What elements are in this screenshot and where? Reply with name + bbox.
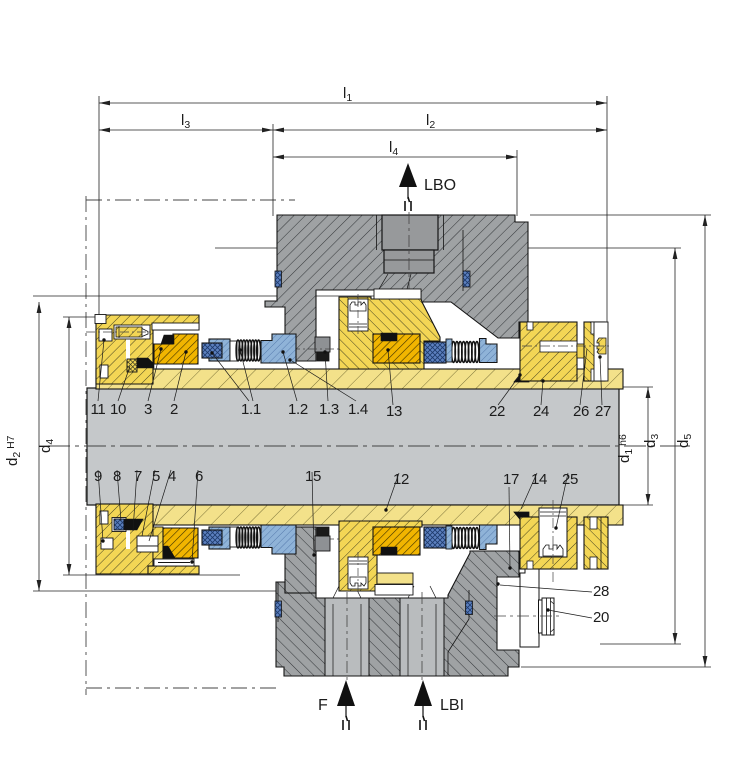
svg-text:8: 8 xyxy=(113,468,121,485)
svg-text:1.1: 1.1 xyxy=(241,401,261,418)
svg-text:15: 15 xyxy=(305,468,321,485)
svg-text:22: 22 xyxy=(489,403,505,420)
svg-text:9: 9 xyxy=(94,468,102,485)
svg-text:24: 24 xyxy=(533,403,549,420)
svg-text:1.4: 1.4 xyxy=(348,401,368,418)
svg-text:4: 4 xyxy=(168,468,176,485)
svg-text:LBO: LBO xyxy=(424,177,456,194)
svg-text:7: 7 xyxy=(134,468,142,485)
svg-text:3: 3 xyxy=(144,401,152,418)
svg-text:12: 12 xyxy=(393,471,409,488)
svg-text:27: 27 xyxy=(595,403,611,420)
svg-text:25: 25 xyxy=(562,471,578,488)
svg-text:28: 28 xyxy=(593,583,609,600)
svg-text:20: 20 xyxy=(593,609,609,626)
svg-text:11: 11 xyxy=(91,401,106,418)
svg-text:LBI: LBI xyxy=(440,697,464,714)
svg-text:17: 17 xyxy=(503,471,519,488)
svg-text:1.3: 1.3 xyxy=(319,401,339,418)
svg-text:2: 2 xyxy=(170,401,178,418)
svg-text:F: F xyxy=(318,697,328,714)
svg-text:1.2: 1.2 xyxy=(288,401,308,418)
svg-text:10: 10 xyxy=(110,401,126,418)
svg-text:5: 5 xyxy=(152,468,160,485)
svg-text:26: 26 xyxy=(573,403,589,420)
svg-text:14: 14 xyxy=(531,471,547,488)
svg-text:13: 13 xyxy=(386,403,402,420)
svg-text:6: 6 xyxy=(195,468,203,485)
